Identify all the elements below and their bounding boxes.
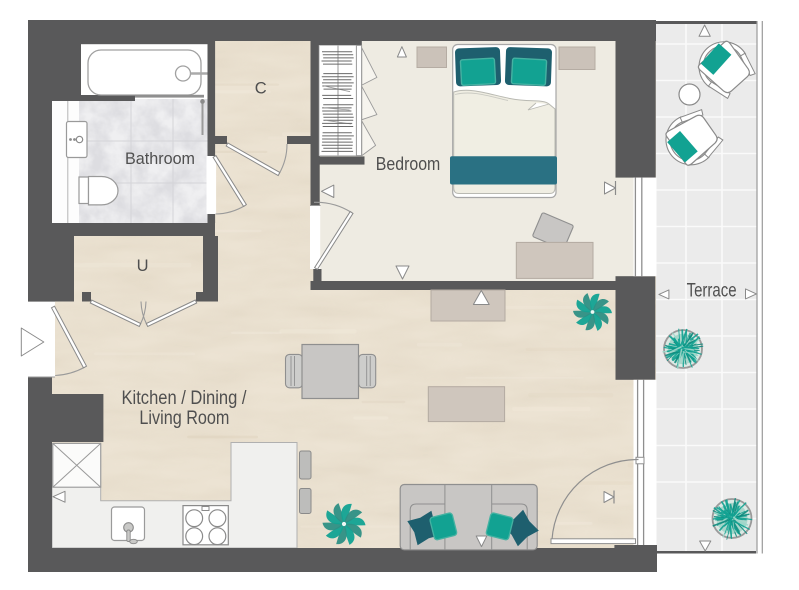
svg-text:Bathroom: Bathroom <box>125 149 195 168</box>
svg-text:C: C <box>255 80 267 98</box>
svg-text:Bedroom: Bedroom <box>376 153 441 174</box>
svg-text:Kitchen / Dining /: Kitchen / Dining / <box>122 388 248 409</box>
svg-text:U: U <box>137 257 149 275</box>
svg-text:Living Room: Living Room <box>139 408 229 429</box>
svg-text:Terrace: Terrace <box>687 280 737 302</box>
